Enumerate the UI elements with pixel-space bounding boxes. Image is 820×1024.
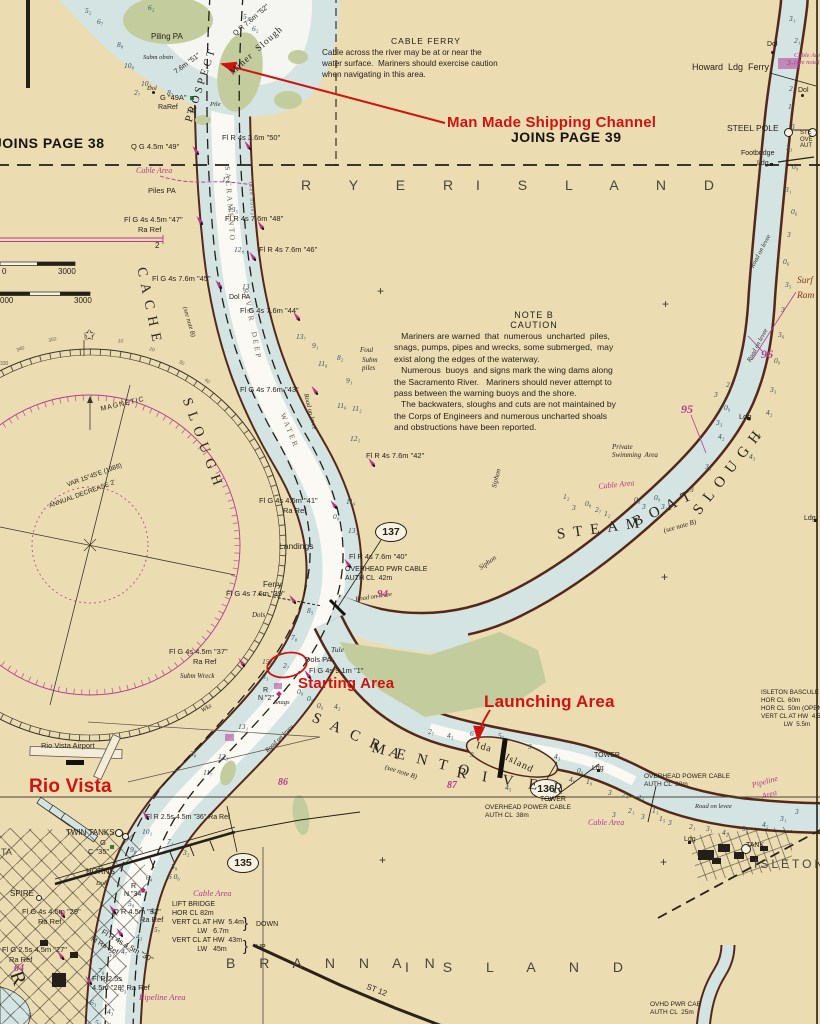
depth-sounding: 4₃	[447, 731, 453, 740]
lift-bridge-down-brace: }	[243, 915, 248, 932]
depth-sounding: 13₁	[238, 722, 248, 731]
depth-sounding: 10₁	[142, 827, 152, 836]
graticule-cross-icon: +	[662, 299, 669, 309]
map-label: Ra Ref	[138, 226, 161, 234]
depth-sounding: 3₅	[785, 280, 791, 289]
depth-sounding: 7₁	[167, 837, 173, 846]
map-label: ISLETON	[754, 858, 820, 871]
map-label: Ra Ref	[140, 916, 163, 924]
map-label: Dols PA	[305, 656, 332, 664]
map-label: Ldg	[684, 836, 696, 844]
depth-sounding: 3	[795, 807, 799, 816]
ovhd-pwr-cab-note: OVHD PWR CAB AUTH CL 25m	[650, 1001, 701, 1017]
depth-sounding: 3₁	[706, 824, 712, 833]
map-label: 000	[0, 297, 13, 306]
depth-sounding: 3₁	[780, 814, 786, 823]
building-block	[718, 844, 730, 852]
depth-sounding: 15₉	[262, 657, 272, 666]
depth-sounding: 7₈	[291, 633, 297, 642]
building-block	[712, 858, 721, 864]
graticule-cross-icon: +	[379, 855, 386, 865]
map-label: R	[131, 883, 136, 891]
map-label: Fl G 4s 4.5m "29"	[22, 908, 81, 916]
map-label: G "49A"	[160, 94, 187, 102]
depth-sounding: 10₈	[124, 61, 134, 70]
map-label: Fl G 4s 4.5m "37"	[169, 648, 228, 656]
depth-sounding: 3₃	[786, 143, 792, 152]
depth-sounding: 0₆	[317, 701, 323, 710]
depth-sounding: 13₇	[296, 332, 306, 341]
map-label: RaRef	[158, 104, 178, 112]
depth-sounding: 6₃	[90, 998, 96, 1007]
map-label: Q G 4.5m "49"	[131, 143, 179, 151]
map-label: Ra Ref	[193, 658, 216, 666]
depth-sounding: 4₂	[766, 408, 772, 417]
map-label: N "34"	[124, 891, 144, 899]
map-label: Ldg	[592, 765, 604, 773]
dolphin-dot-icon	[771, 51, 774, 54]
cable-area-patch	[225, 734, 234, 741]
annotation-label: Launching Area	[484, 692, 615, 711]
lift-bridge-down-label: DOWN	[256, 921, 278, 928]
map-label: Ldg	[739, 413, 752, 421]
depth-sounding: 3₁	[789, 14, 795, 23]
map-label: 3000	[58, 268, 76, 277]
depth-sounding: 3	[787, 230, 791, 239]
map-label: Subm piles	[362, 357, 378, 373]
map-label: Fl R 4s 7.6m "42"	[366, 452, 424, 460]
map-label: Fl R 4s 7.6m "40"	[349, 553, 407, 561]
map-label: Dols	[252, 612, 265, 620]
map-label: 0	[84, 336, 87, 342]
depth-sounding: 0₆	[634, 495, 640, 504]
map-label: Howard Ldg Ferry	[692, 62, 769, 72]
depth-sounding: 3₂	[742, 824, 748, 833]
map-label: I S L A N D	[476, 178, 731, 194]
map-label: Ram	[797, 291, 814, 302]
depth-sounding: 0₅	[307, 694, 313, 703]
map-label: Cable Area	[193, 889, 231, 899]
river-mile-marker: 135	[227, 853, 259, 873]
map-label: TANK	[746, 842, 764, 850]
map-label: JOINS PAGE 38	[0, 136, 105, 152]
map-label: Fl G 4s 7.6m "39"	[226, 590, 285, 598]
landmark-circle-icon	[784, 128, 793, 137]
depth-sounding: 2₇	[134, 88, 140, 97]
map-label: Ra Ref	[9, 956, 32, 964]
depth-sounding: 2₇	[428, 727, 434, 736]
annotation-label: Starting Area	[298, 676, 394, 693]
map-label: 2	[155, 242, 159, 251]
depth-sounding: 0₉	[774, 356, 780, 365]
map-label: Cable Area	[588, 819, 624, 828]
depth-sounding: 5₂	[95, 1018, 101, 1024]
map-label: Dol	[767, 41, 778, 49]
cable-ferry-title: CABLE FERRY	[322, 36, 530, 46]
map-label: Subm Wreck	[180, 673, 215, 681]
map-label: 10	[117, 339, 123, 345]
nautical-chart: CABLE FERRY Cable across the river may b…	[0, 0, 820, 1024]
depth-sounding: 0₈	[333, 512, 339, 521]
map-label: 4.5m "28" Ra Ref	[92, 984, 150, 992]
depth-sounding: 3₃	[770, 385, 776, 394]
map-label: TWIN TANKS	[66, 829, 115, 838]
note-b: NOTE B CAUTION Mariners are warned that …	[394, 310, 674, 434]
depth-sounding: 6₇	[97, 17, 103, 26]
depth-sounding: 4₃	[136, 932, 142, 941]
map-label: Fl R 4s 7.6m "46"	[259, 246, 317, 254]
annotation-label: Rio Vista	[29, 776, 112, 797]
depth-sounding: S 0₆	[168, 872, 180, 881]
depth-sounding: 0₉	[577, 766, 583, 775]
depth-sounding: 3₂	[183, 848, 189, 857]
depth-sounding: 2₁	[628, 806, 634, 815]
map-label: Piling PA	[151, 33, 183, 42]
isleton-bridge-note: ISLETON BASCULE BRIDGE HOR CL 60m HOR CL…	[761, 689, 820, 729]
map-label: Fl G 2.5s 4.5m "27"	[2, 946, 67, 954]
depth-sounding: 3	[781, 305, 785, 314]
depth-sounding: 3	[641, 812, 645, 821]
depth-sounding: 3	[572, 503, 576, 512]
lift-bridge-up-brace: }	[243, 938, 248, 955]
depth-sounding: 13₂	[348, 526, 358, 535]
map-label: I S L A N D	[405, 960, 638, 976]
map-label: R Y E R	[301, 178, 470, 194]
depth-sounding: 8₂	[337, 353, 343, 362]
map-label: N "2"	[258, 695, 274, 703]
building-block	[52, 973, 66, 987]
landing-square-icon	[770, 163, 773, 166]
pwr-cable-38a-note: OVERHEAD POWER CABLE AUTH CL 38m	[485, 804, 571, 820]
map-label: Dol	[147, 85, 157, 92]
depth-sounding: 3	[714, 390, 718, 399]
depth-sounding: 0₆	[783, 257, 789, 266]
depth-sounding: 3	[470, 750, 474, 759]
depth-sounding: 6	[470, 729, 474, 738]
depth-sounding: 5₂	[85, 6, 91, 15]
map-label: Rio Vista Airport	[41, 742, 95, 750]
depth-sounding: 8₅	[307, 606, 313, 615]
depth-sounding: 4₃	[107, 1007, 113, 1016]
lift-bridge-note: LIFT BRIDGE HOR CL 82m VERT CL AT HW 5.4…	[172, 900, 244, 954]
depth-sounding: 3	[608, 788, 612, 797]
pwr-cable-42-note: OVERHEAD PWR CABLE AUTH CL 42m	[345, 566, 427, 583]
landmark-circle-icon	[36, 895, 42, 901]
map-label: Pile	[210, 101, 220, 108]
depth-sounding: 1₃	[638, 793, 644, 802]
map-label: Fl R 4s 3.6m "50"	[222, 134, 280, 142]
depth-sounding: 2₇	[595, 505, 601, 514]
depth-sounding: 1₂	[604, 509, 610, 518]
map-label: Road on levee	[695, 803, 732, 810]
map-label: Ra Ref	[283, 507, 306, 515]
depth-sounding: 11₆	[346, 497, 356, 506]
map-label: 87	[447, 780, 457, 791]
pwr-cable-38b-note: OVERHEAD POWER CABLE AUTH CL 38m	[644, 773, 730, 789]
building-block	[70, 952, 78, 958]
map-label: Cable Area (see note)	[794, 52, 820, 67]
depth-sounding: 1₃	[788, 102, 794, 111]
depth-sounding: 3₁	[785, 185, 791, 194]
depth-sounding: 11₆	[318, 359, 328, 368]
map-label: Foul	[360, 347, 373, 355]
map-label: Dols	[96, 880, 108, 887]
depth-sounding: 12₅	[350, 434, 360, 443]
map-label: HORNS	[86, 868, 115, 877]
map-label: Cable Area	[136, 167, 172, 176]
depth-sounding: 4₃	[554, 752, 560, 761]
depth-sounding: 12₈	[234, 245, 244, 254]
depth-sounding: 0₉	[792, 162, 798, 171]
depth-sounding: 11₆	[337, 401, 347, 410]
map-label: JOINS PAGE 39	[511, 130, 622, 146]
cable-ferry-body: Cable across the river may be at or near…	[322, 47, 530, 80]
depth-sounding: 4₂	[718, 432, 724, 441]
graticule-cross-icon: +	[660, 857, 667, 867]
map-label: Subm obstn	[143, 54, 173, 61]
depth-sounding: 1₅	[659, 814, 665, 823]
depth-sounding: 12₃	[218, 752, 228, 761]
map-label: 95	[681, 403, 693, 416]
depth-sounding: 2₁	[622, 790, 628, 799]
map-label: Ldg	[804, 515, 816, 523]
map-label: Fl G 4s 7.6m "45"	[152, 275, 211, 283]
depth-sounding: 5	[28, 1011, 32, 1020]
map-label: STEEL POLE	[727, 124, 779, 134]
map-label: Fl G 4s 4.5m "41"	[259, 497, 318, 505]
depth-sounding: 3	[668, 818, 672, 827]
depth-sounding: 1₉	[586, 777, 592, 786]
map-label: Fl G 4s 4.5m "47"	[124, 216, 183, 224]
map-label: Snags	[274, 699, 290, 706]
depth-sounding: 11₂	[352, 404, 362, 413]
river-mile-marker: 137	[375, 522, 407, 542]
depth-sounding: 2₇	[283, 661, 289, 670]
depth-sounding: 2₁	[689, 822, 695, 831]
cable-ferry-note: CABLE FERRY Cable across the river may b…	[322, 36, 530, 80]
map-label: Private Swimming Area	[612, 444, 658, 460]
green-daymark-icon	[110, 845, 114, 849]
depth-sounding: 1₂	[563, 492, 569, 501]
depth-sounding: 6₂	[252, 24, 258, 33]
graticule-cross-icon: +	[377, 286, 384, 296]
map-label: TA	[1, 847, 12, 857]
depth-sounding: 0₉	[724, 403, 730, 412]
map-label: SPIRE	[10, 890, 34, 899]
map-label: TOWER	[540, 796, 566, 804]
depth-sounding: 6₂	[148, 3, 154, 12]
depth-sounding: 3₉	[171, 862, 177, 871]
map-label: Fl G 4s 7.6m "43"	[240, 386, 299, 394]
depth-sounding: 4₂	[334, 702, 340, 711]
depth-sounding: 0₆	[791, 207, 797, 216]
depth-sounding: 4₂	[762, 820, 768, 829]
note-b-caution: CAUTION	[394, 320, 674, 330]
landmark-circle-icon	[122, 833, 129, 840]
map-label: STE OVE AUT	[800, 130, 813, 150]
depth-sounding: 8₁	[262, 672, 268, 681]
depth-sounding: 8₈	[117, 40, 123, 49]
depth-sounding: 5₅	[498, 731, 504, 740]
depth-sounding: 1₁	[652, 806, 658, 815]
map-label: Ldg	[757, 160, 769, 168]
note-b-body: Mariners are warned that numerous unchar…	[394, 331, 674, 434]
depth-sounding: 3₆	[778, 330, 784, 339]
depth-sounding: 2₈	[190, 749, 196, 758]
depth-sounding: 2₁	[794, 36, 800, 45]
map-label: TOWER	[594, 752, 620, 760]
map-label: 96	[761, 348, 773, 361]
map-label: 330	[0, 362, 8, 368]
depth-sounding: 2₇	[789, 84, 795, 93]
depth-sounding: 3₃	[716, 418, 722, 427]
map-label: Surf	[797, 276, 813, 287]
bottom-right-channel	[703, 945, 728, 1024]
map-label: 94	[377, 588, 388, 600]
depth-sounding: 4₂	[722, 828, 728, 837]
map-label: C "35"	[88, 848, 109, 856]
map-label: 86	[278, 777, 288, 788]
map-label: Pipeline Area	[139, 993, 186, 1003]
note-b-title: NOTE B	[394, 310, 674, 320]
depth-sounding: 5₇	[154, 925, 160, 934]
map-label: 3000	[74, 297, 92, 306]
cable-area-patch	[274, 683, 282, 689]
depth-sounding: 9₁	[312, 341, 318, 350]
map-label: Fl R 2.5s 4.5m "36" Ra Ref	[146, 814, 230, 822]
map-label: 0	[2, 268, 6, 277]
depth-sounding: 0₈	[585, 499, 591, 508]
map-label: Ra Ref	[38, 918, 61, 926]
depth-sounding: 2₁	[726, 380, 732, 389]
depth-sounding: 3₆	[705, 462, 711, 471]
depth-sounding: 9₈	[130, 845, 136, 854]
map-label: Landings	[279, 542, 314, 552]
map-label: Piles PA	[148, 187, 176, 195]
depth-sounding: 3	[528, 742, 532, 751]
depth-sounding: 6₄	[146, 873, 152, 882]
lift-bridge-up-label: UP	[256, 944, 266, 951]
depth-sounding: 9₁	[346, 376, 352, 385]
map-label: R	[263, 687, 268, 695]
map-label: Footbridge	[741, 150, 774, 158]
depth-sounding: 11₇	[203, 768, 213, 777]
map-label: Dol	[798, 87, 809, 95]
map-label: Tule	[331, 646, 344, 654]
building-block	[734, 852, 744, 859]
graticule-cross-icon: +	[661, 572, 668, 582]
